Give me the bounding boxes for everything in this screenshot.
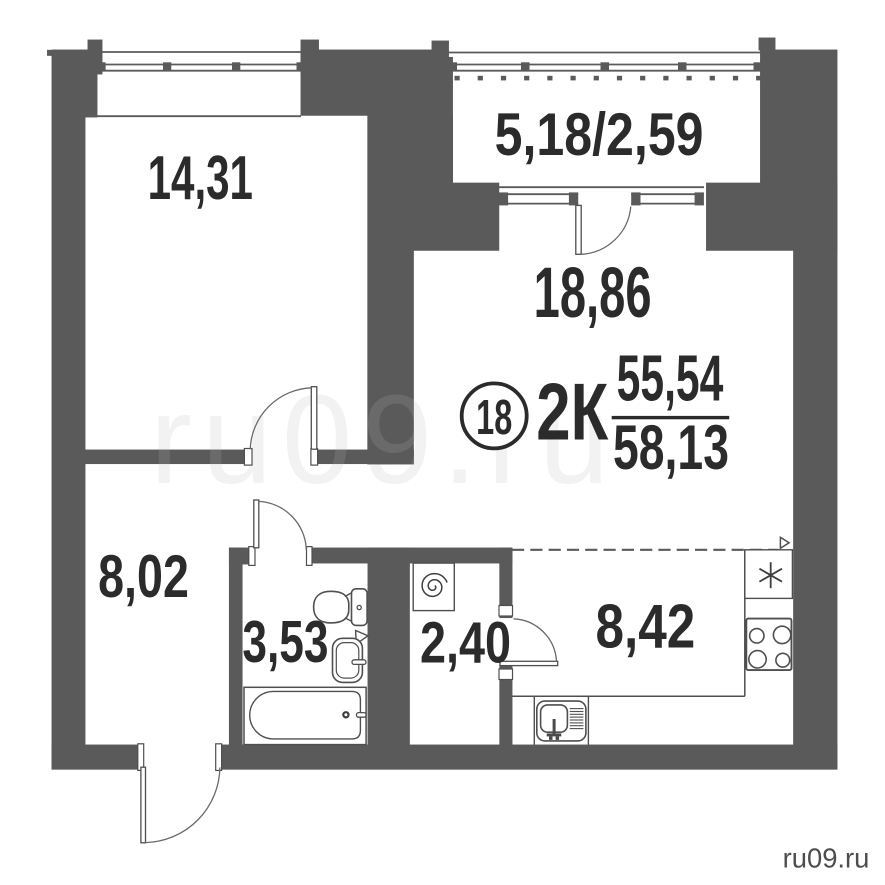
- svg-text:8,02: 8,02: [98, 543, 189, 610]
- svg-text:14,31: 14,31: [148, 144, 253, 213]
- svg-text:3,53: 3,53: [242, 609, 328, 676]
- svg-text:18: 18: [476, 389, 512, 445]
- svg-text:18,86: 18,86: [534, 252, 652, 332]
- svg-text:5,18/2,59: 5,18/2,59: [495, 101, 704, 169]
- svg-text:2К: 2К: [536, 368, 608, 458]
- svg-text:ru09.ru: ru09.ru: [783, 843, 870, 874]
- svg-text:2,40: 2,40: [420, 611, 511, 676]
- svg-text:55,54: 55,54: [617, 341, 724, 414]
- svg-text:8,42: 8,42: [595, 592, 695, 662]
- svg-text:58,13: 58,13: [613, 412, 729, 483]
